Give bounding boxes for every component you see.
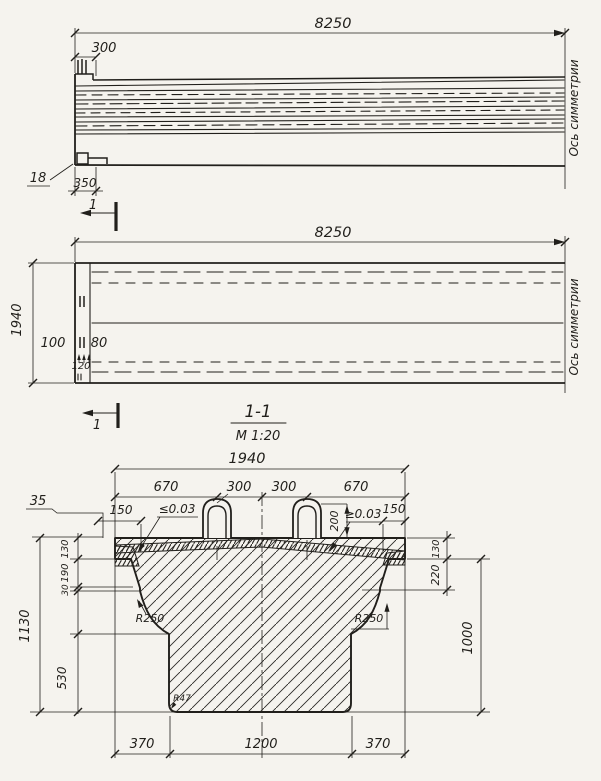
plan-dim-span: 8250 (315, 225, 352, 241)
elevation-lifting-loop (78, 59, 86, 74)
elevation-plate-mark: 18 (30, 171, 47, 186)
section-dim-300-left: 300 (227, 480, 252, 495)
plan-view: 8250 1940 (10, 225, 581, 433)
section-cut-label-bottom: 1 (93, 418, 101, 433)
section-lifting-loop-right (293, 499, 321, 538)
section-dim-30: 30 (61, 584, 71, 596)
section-concrete-body (115, 538, 405, 712)
section-lifting-loop-left (203, 499, 231, 538)
plan-dim-100: 100 (41, 336, 66, 351)
section-view: 1-1 М 1:20 1940 (18, 402, 490, 758)
section-dim-190: 190 (60, 563, 71, 582)
section-dim-670-left: 670 (154, 480, 179, 495)
section-dim-1200: 1200 (244, 737, 277, 752)
section-dim-35: 35 (30, 494, 47, 509)
section-dim-300-right: 300 (272, 480, 297, 495)
plan-spacing-arrows (77, 354, 91, 363)
section-dim-130-left: 130 (60, 539, 71, 558)
elevation-dim-end-offset: 300 (92, 41, 117, 56)
section-dim-1130: 1130 (18, 609, 33, 642)
drawing-sheet: 8250 300 (0, 0, 601, 781)
elevation-axis-label: Ось симметрии (567, 59, 581, 156)
section-slope-right: ≥0.03 (345, 507, 382, 521)
section-dim-1000: 1000 (461, 621, 476, 654)
section-cut-marker-top: 1 (80, 198, 116, 231)
elevation-bearing-plate (77, 153, 107, 164)
section-cut-label-top: 1 (89, 198, 97, 213)
elevation-strand-lines (76, 80, 564, 134)
section-title: 1-1 (245, 402, 272, 421)
plan-dim-80: 80 (91, 336, 108, 351)
section-dim-530: 530 (55, 666, 69, 689)
section-dim-150-left: 150 (110, 503, 133, 517)
elevation-dim-span: 8250 (315, 16, 352, 32)
section-scale: М 1:20 (236, 429, 281, 444)
beam-drawing: 8250 300 (0, 0, 601, 781)
section-cut-marker-bottom: 1 (82, 403, 118, 433)
section-dim-130-right: 130 (431, 539, 442, 558)
section-slope-left: ≤0.03 (159, 502, 196, 516)
section-radius-right: R250 (355, 612, 384, 625)
section-dim-220: 220 (429, 565, 442, 586)
section-dim-670-right: 670 (344, 480, 369, 495)
section-dim-370-left: 370 (130, 737, 155, 752)
plan-dim-120: 120 (71, 361, 90, 372)
section-dim-width: 1940 (229, 451, 266, 467)
plan-dim-width: 1940 (10, 303, 25, 336)
section-radius-left: R250 (136, 612, 165, 625)
section-radius-corner: R47 (173, 694, 191, 704)
plan-axis-label: Ось симметрии (567, 278, 581, 375)
elevation-dim-plate: 350 (74, 176, 97, 190)
plan-strand-lines (92, 272, 563, 372)
elevation-view: 8250 300 (27, 16, 581, 231)
section-dim-150-right: 150 (383, 502, 406, 516)
section-dim-370-right: 370 (366, 737, 391, 752)
section-dim-200: 200 (328, 511, 341, 532)
